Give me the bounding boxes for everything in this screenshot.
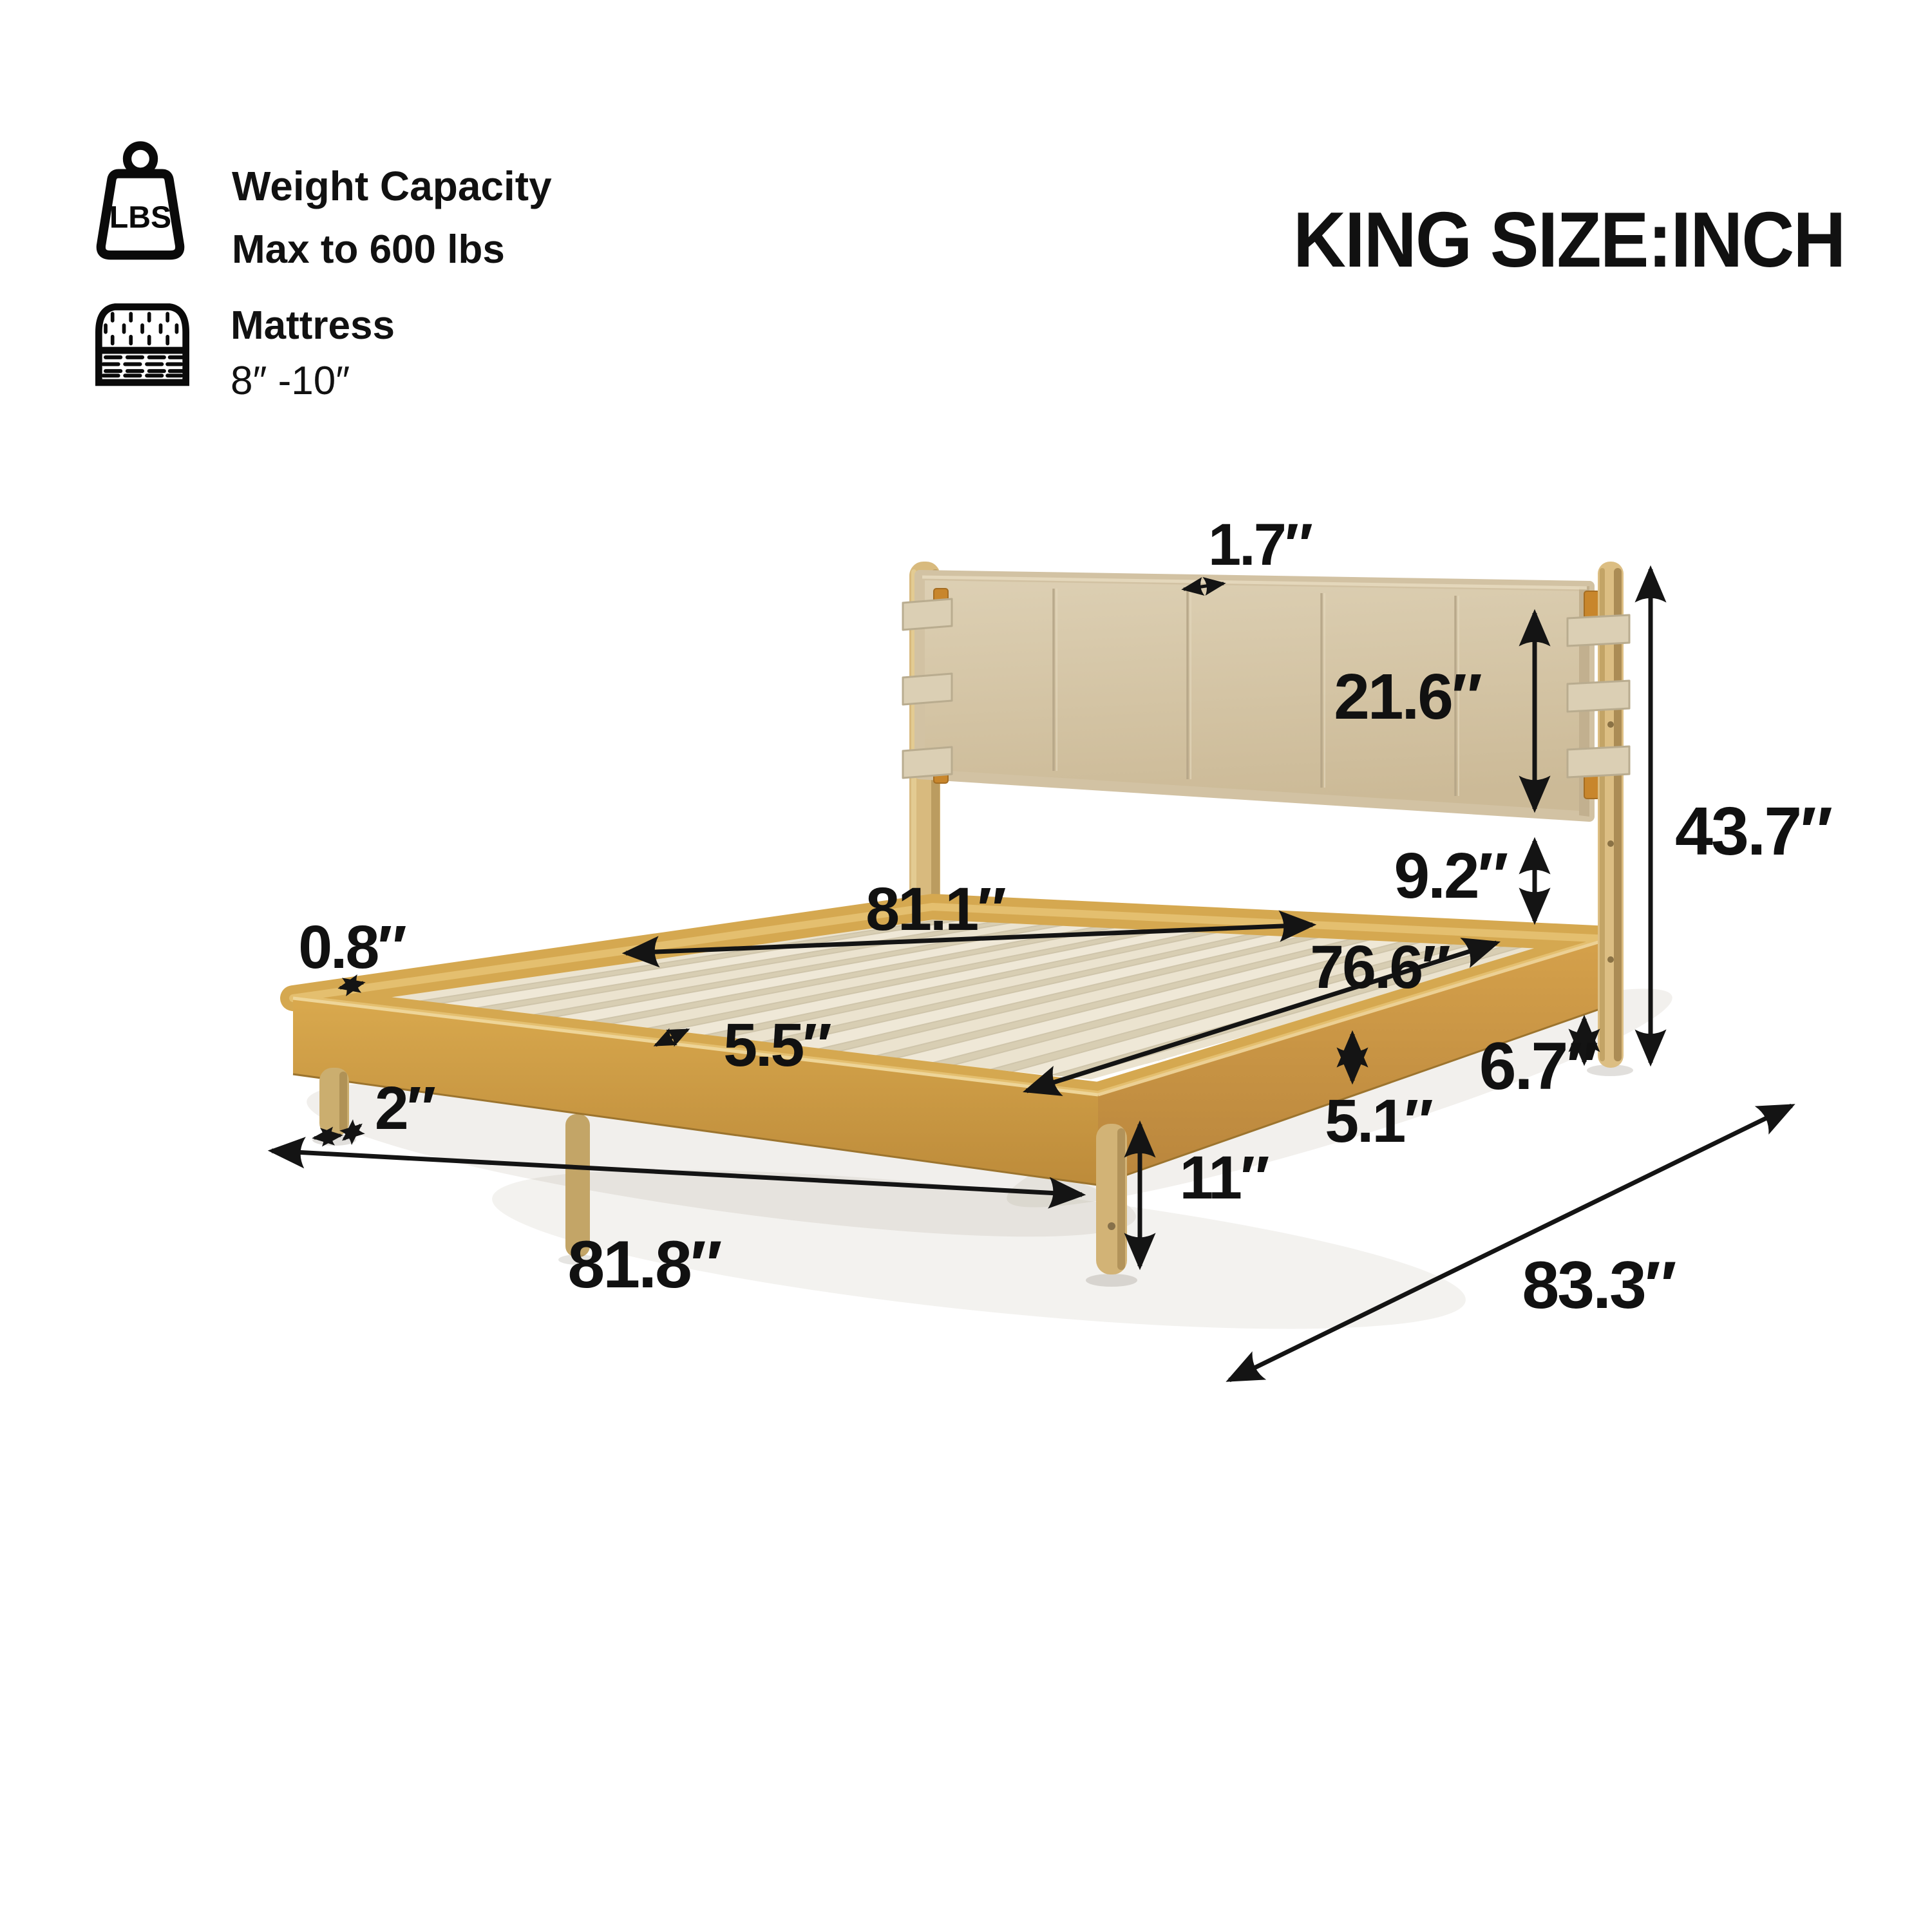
dim-slat-spacing: 5.5″	[723, 1015, 830, 1076]
dim-leg-height: 11″	[1180, 1148, 1268, 1209]
dim-rail-height: 5.1″	[1325, 1091, 1432, 1152]
dim-frame-length: 81.8″	[567, 1231, 720, 1298]
dim-frame-depth: 83.3″	[1522, 1252, 1674, 1319]
dim-inner-width: 76.6″	[1310, 937, 1448, 998]
bed-illustration	[0, 0, 1932, 1932]
spec-diagram-page: LBS Weight Capacity Max to 600 lbs Mattr…	[0, 0, 1932, 1932]
dim-rail-to-floor: 6.7″	[1479, 1033, 1596, 1100]
dim-headboard-thickness: 1.7″	[1208, 515, 1311, 574]
headboard-straps-left	[903, 599, 952, 778]
headboard-panel	[920, 575, 1589, 817]
headboard-straps-right	[1567, 615, 1629, 777]
dim-total-height: 43.7″	[1675, 797, 1831, 866]
dim-panel-to-frame-gap: 9.2″	[1394, 844, 1507, 908]
dim-leg-diameter: 2″	[375, 1078, 434, 1139]
dim-slat-length: 81.1″	[866, 879, 1004, 940]
dim-headboard-panel-height: 21.6″	[1334, 665, 1481, 729]
dim-rim-thickness: 0.8″	[298, 917, 405, 978]
